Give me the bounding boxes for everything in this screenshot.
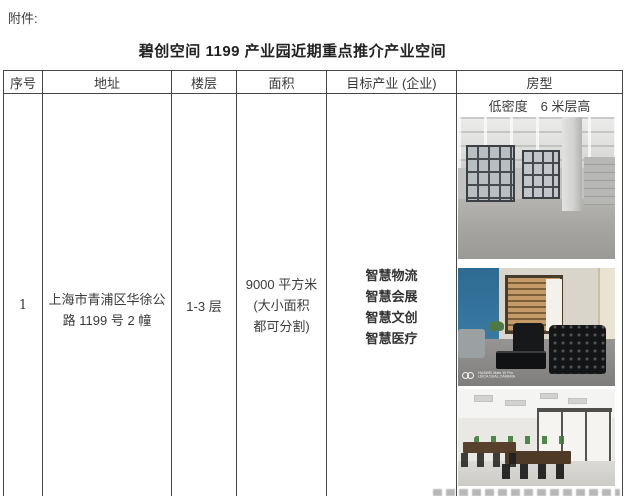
room-type-note: 低密度 6 米层高 (457, 96, 622, 115)
photo2-window-light (546, 279, 562, 331)
document-page: 附件: 碧创空间 1199 产业园近期重点推介产业空间 序号 地址 楼层 面积 … (0, 0, 625, 496)
photo-industrial-space (458, 117, 615, 259)
photo1-pillar (562, 117, 582, 211)
industry-line-2: 智慧会展 (327, 286, 456, 307)
cell-room-type: 低密度 6 米层高 (457, 94, 622, 496)
photo2-camera-watermark: HUAWEI Mate 10 Pro LEICA DUAL CAMERA (462, 369, 540, 381)
watermark-line-2: LEICA DUAL CAMERA (478, 375, 515, 379)
cropped-text-fragment (433, 489, 620, 496)
cell-address: 上海市青浦区华徐公 路 1199 号 2 幢 (43, 94, 172, 496)
photo-office-desks (458, 389, 615, 486)
watermark-text: HUAWEI Mate 10 Pro LEICA DUAL CAMERA (478, 371, 515, 378)
area-value: 9000 平方米 (大小面积 都可分割) (237, 274, 326, 337)
industry-line-3: 智慧文创 (327, 307, 456, 328)
header-room-type: 房型 (457, 71, 622, 94)
photo3-ceiling-light (540, 393, 559, 399)
floor-value: 1-3 层 (172, 296, 236, 317)
photo2-gray-sofa (458, 329, 485, 357)
photo-lounge-sofas: HUAWEI Mate 10 Pro LEICA DUAL CAMERA (458, 268, 615, 386)
photo1-concrete-floor (458, 199, 615, 259)
address-line-2: 路 1199 号 2 幢 (43, 310, 171, 331)
photo1-window-grid-left (466, 145, 515, 202)
address-value: 上海市青浦区华徐公 路 1199 号 2 幢 (43, 289, 171, 331)
seq-value: 1 (4, 295, 42, 316)
photo1-window-grid-right (522, 150, 560, 200)
cell-seq: 1 (4, 94, 43, 496)
industry-line-4: 智慧医疗 (327, 328, 456, 349)
cell-floor: 1-3 层 (172, 94, 237, 496)
photo3-office-chairs-front (502, 464, 574, 480)
industry-line-1: 智慧物流 (327, 265, 456, 286)
area-line-2: (大小面积 (237, 295, 326, 316)
attachment-label: 附件: (8, 8, 38, 27)
area-line-3: 都可分割) (237, 316, 326, 337)
area-line-1: 9000 平方米 (237, 274, 326, 295)
header-seq: 序号 (4, 71, 43, 94)
photo3-ceiling-light (505, 400, 525, 407)
cell-area: 9000 平方米 (大小面积 都可分割) (237, 94, 327, 496)
space-promotion-table: 序号 地址 楼层 面积 目标产业 (企业) 房型 1 上海市青浦区华徐公 路 1… (3, 70, 623, 496)
cell-industry: 智慧物流 智慧会展 智慧文创 智慧医疗 (327, 94, 457, 496)
leica-dual-circles-icon (462, 372, 475, 379)
page-title: 碧创空间 1199 产业园近期重点推介产业空间 (0, 40, 585, 61)
header-floor: 楼层 (172, 71, 237, 94)
photo1-right-wall (584, 157, 615, 205)
header-area: 面积 (237, 71, 327, 94)
photo2-leather-sofa (549, 325, 606, 375)
address-line-1: 上海市青浦区华徐公 (43, 289, 171, 310)
header-industry: 目标产业 (企业) (327, 71, 457, 94)
header-address: 地址 (43, 71, 172, 94)
photo2-coffee-table (496, 351, 546, 370)
photo3-ceiling-light (568, 398, 587, 404)
photo2-plant (489, 321, 503, 330)
industry-value: 智慧物流 智慧会展 智慧文创 智慧医疗 (327, 265, 456, 349)
photo3-ceiling-light (474, 395, 493, 402)
